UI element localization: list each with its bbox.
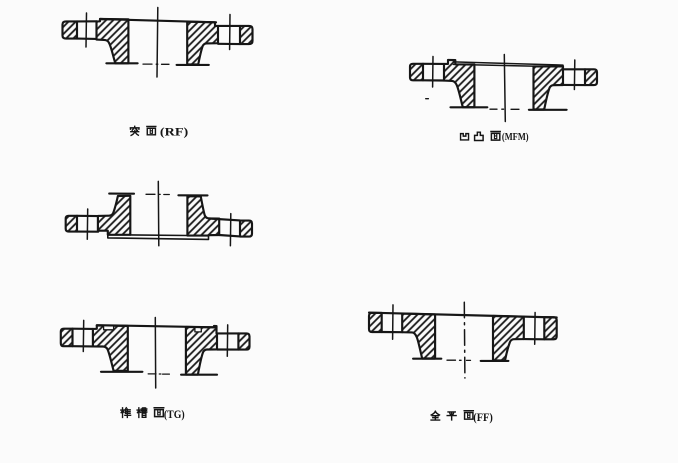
svg-text:(TG): (TG) <box>164 407 185 421</box>
svg-text:(RF): (RF) <box>160 125 188 139</box>
svg-text:(FF): (FF) <box>473 410 493 424</box>
svg-text:(MFM): (MFM) <box>502 131 529 143</box>
